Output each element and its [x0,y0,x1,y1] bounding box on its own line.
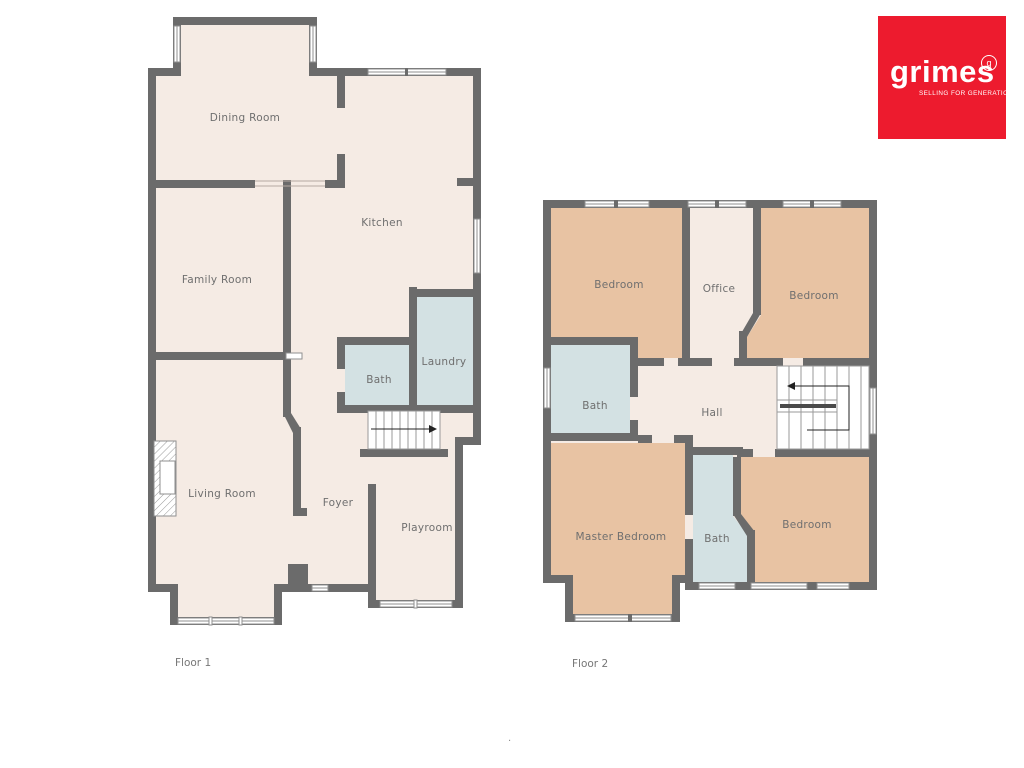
floor1-caption: Floor 1 [175,657,211,669]
room-label-hall: Hall [701,407,722,419]
floor2-bath-area [551,345,630,433]
agency-logo: grimes g SELLING FOR GENERATIONS [878,16,1006,139]
floor1-door-icon [286,353,302,359]
floorplan-page: Dining Room Kitchen Family Room Laundry … [0,0,1024,768]
room-label-master-bedroom: Master Bedroom [576,531,667,543]
room-label-bath-f2: Bath [582,400,608,412]
floor1-dining-bay-area [177,21,309,72]
room-label-bath2-f2: Bath [704,533,730,545]
floor1-living-bay-area [178,584,274,618]
room-label-kitchen: Kitchen [361,217,403,229]
room-label-foyer: Foyer [323,497,354,509]
room-label-living-room: Living Room [188,488,256,500]
floor1-laundry-area [417,297,473,405]
room-label-bedroom-3: Bedroom [782,519,832,531]
stairs-rail [780,404,836,408]
agency-logo-mark-icon: g [981,55,997,71]
agency-logo-brand: grimes [890,56,995,87]
agency-logo-tagline: SELLING FOR GENERATIONS [919,90,985,97]
floor1-stairs [368,411,440,449]
room-label-bedroom-1: Bedroom [594,279,644,291]
fireplace-icon [154,441,176,516]
footer-dot: . [508,733,511,744]
floor1-playroom-bay-area [376,583,456,601]
room-label-family-room: Family Room [182,274,252,286]
room-label-bath-f1: Bath [366,374,392,386]
floor2-stairs [777,366,869,449]
room-label-office: Office [703,283,736,295]
floorplan-canvas [0,0,1024,768]
room-label-laundry: Laundry [422,356,467,368]
room-label-bedroom-2: Bedroom [789,290,839,302]
room-label-playroom: Playroom [401,522,452,534]
floor2-caption: Floor 2 [572,658,608,670]
room-label-dining-room: Dining Room [210,112,280,124]
floor2-bedroom2-area [747,208,869,358]
floor2-master-bay-area [573,582,672,614]
floor2-master-bedroom-area [551,443,685,582]
